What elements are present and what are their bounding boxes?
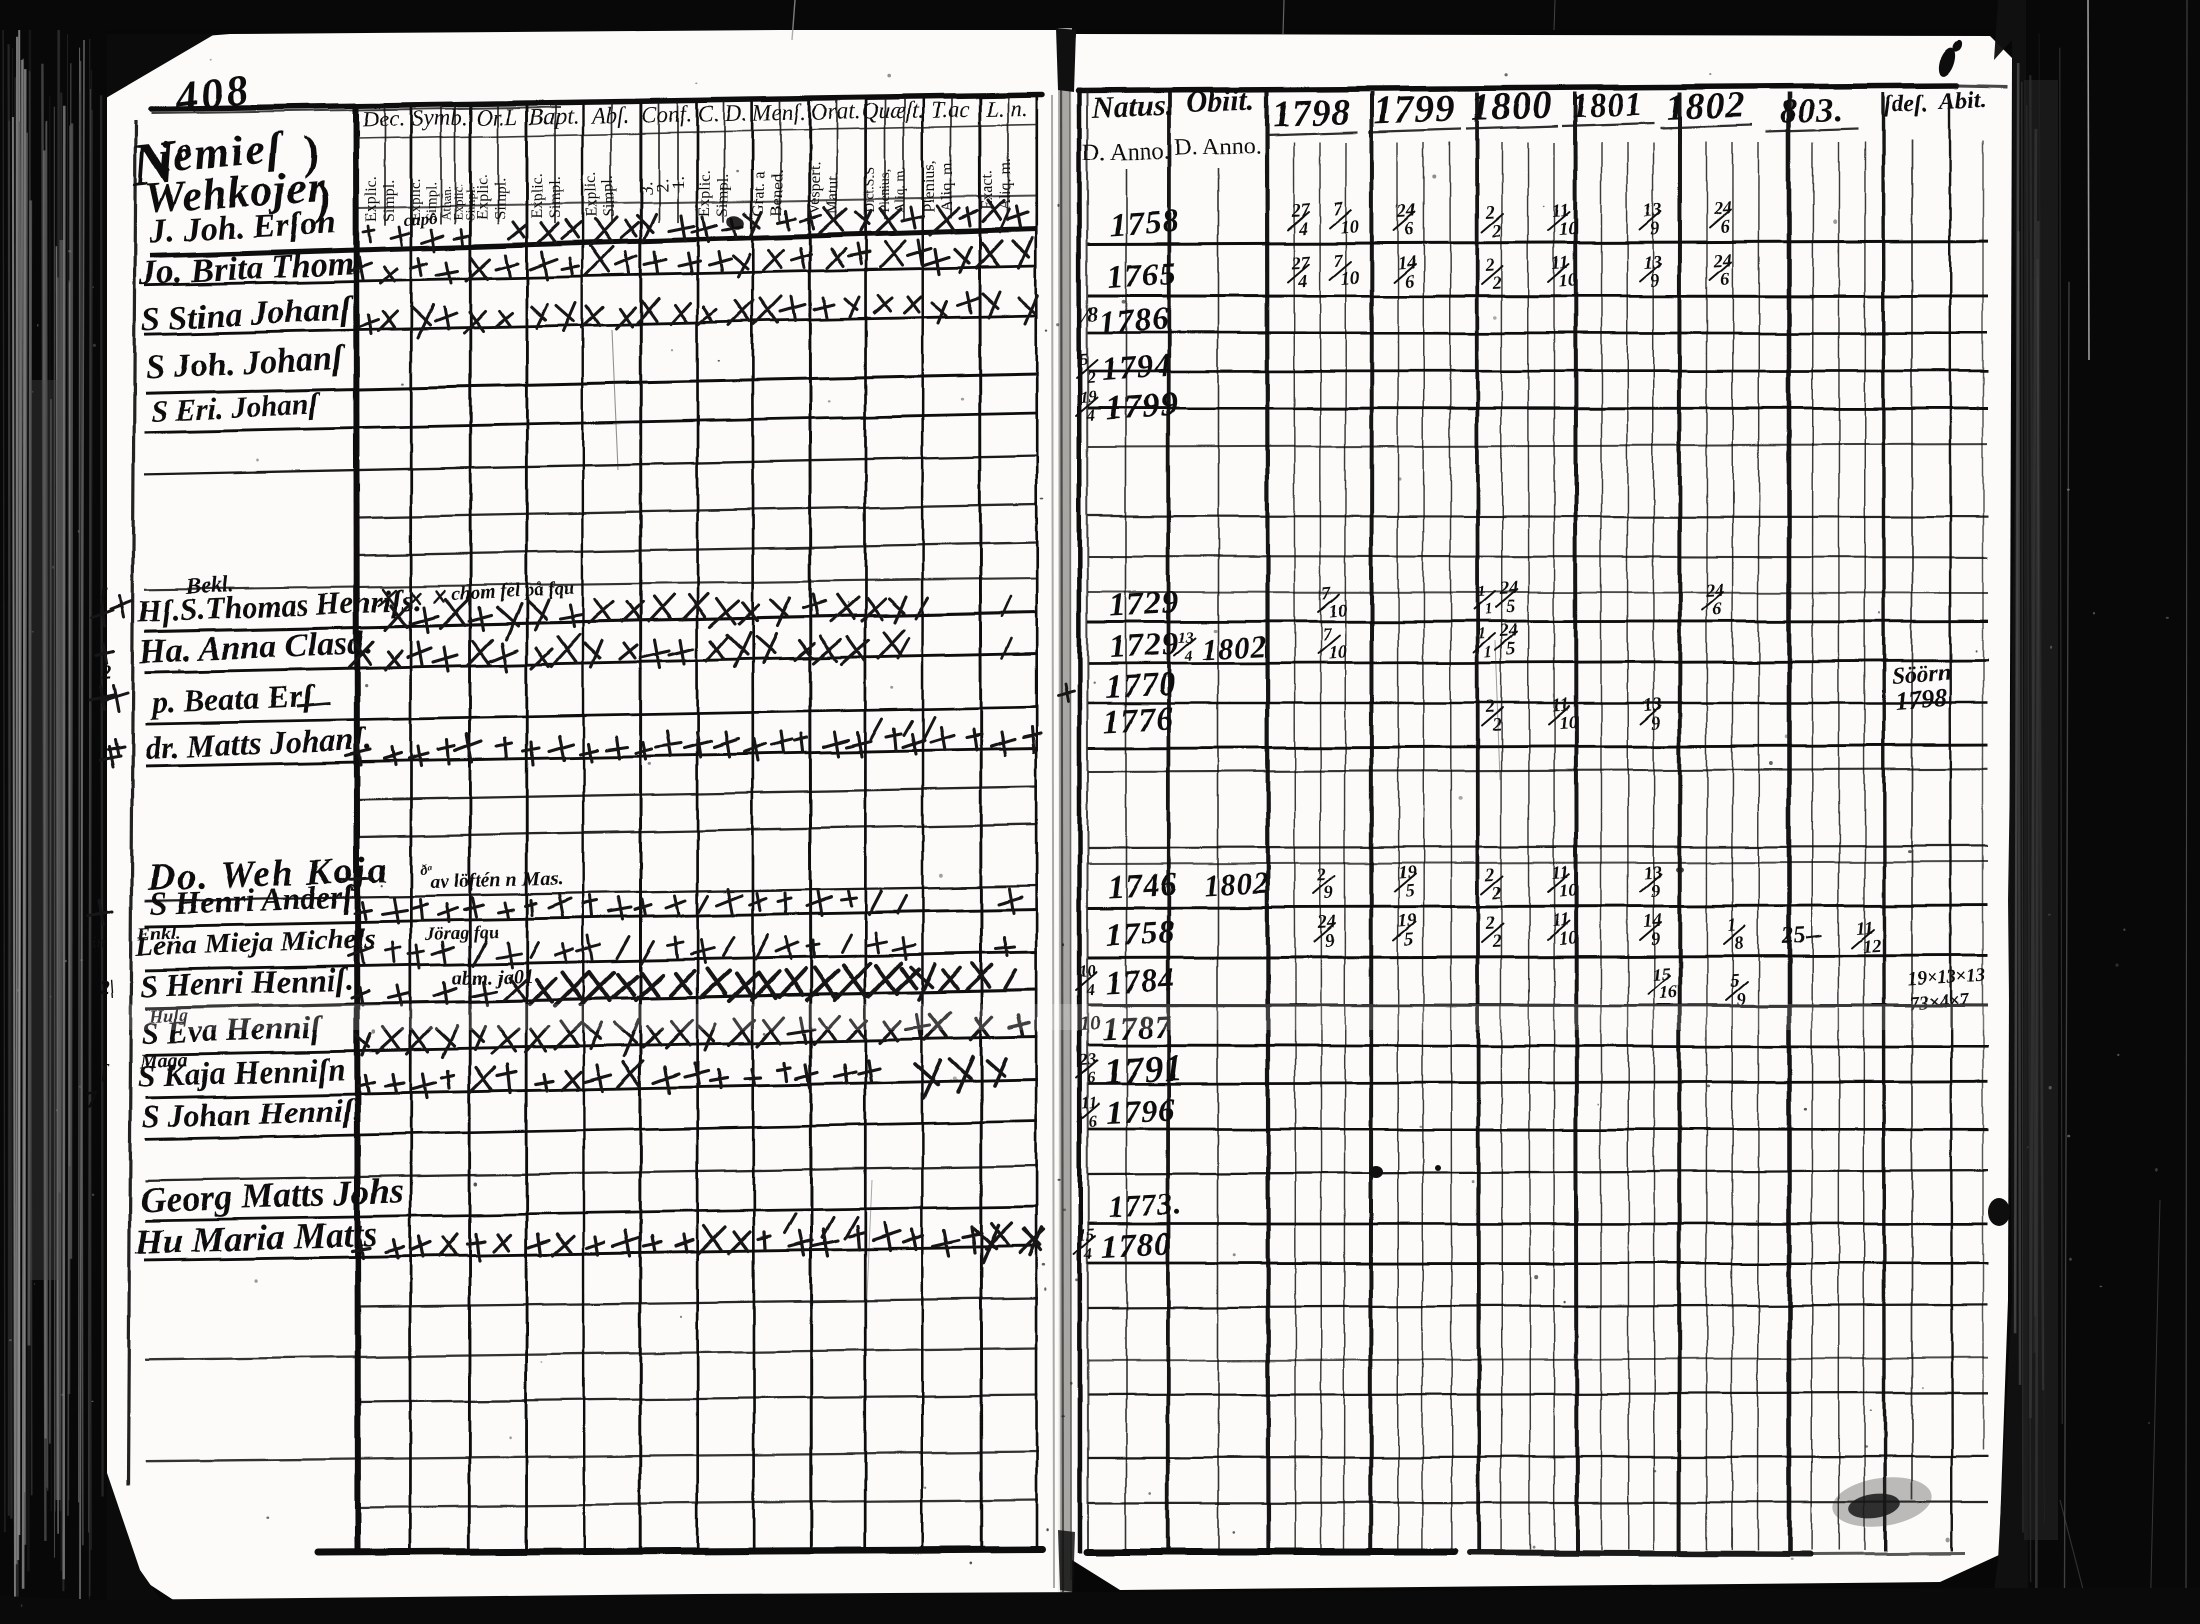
svg-text:10: 10 bbox=[1328, 600, 1348, 621]
svg-text:5: 5 bbox=[1506, 596, 1517, 617]
svg-text:27: 27 bbox=[1290, 200, 1312, 221]
svg-text:10: 10 bbox=[1558, 928, 1578, 949]
svg-text:1786: 1786 bbox=[1098, 301, 1170, 342]
svg-text:1: 1 bbox=[1477, 625, 1486, 643]
svg-text:D. Anno.: D. Anno. bbox=[1174, 133, 1262, 161]
svg-text:5: 5 bbox=[1404, 880, 1415, 901]
svg-text:4: 4 bbox=[1297, 218, 1309, 239]
svg-text:10: 10 bbox=[1558, 218, 1578, 239]
svg-text:5: 5 bbox=[1729, 970, 1740, 991]
svg-text:13: 13 bbox=[1177, 629, 1194, 647]
svg-text:S Henri Henniſ.: S Henri Henniſ. bbox=[139, 961, 354, 1004]
svg-text:Do. Weh Koja: Do. Weh Koja bbox=[146, 849, 389, 899]
svg-text:1799: 1799 bbox=[1373, 87, 1456, 133]
svg-text:4: 4 bbox=[1085, 979, 1096, 999]
svg-text:13: 13 bbox=[1643, 694, 1663, 715]
svg-text:2: 2 bbox=[1491, 714, 1503, 735]
svg-text:ðᵃ: ðᵃ bbox=[419, 861, 432, 878]
svg-text:1: 1 bbox=[1727, 914, 1738, 935]
svg-text:av löftén n Mas.: av löftén n Mas. bbox=[430, 868, 564, 893]
svg-text:Simpl.: Simpl. bbox=[381, 180, 398, 222]
svg-text:9: 9 bbox=[1324, 882, 1335, 903]
svg-text:9: 9 bbox=[1650, 928, 1661, 949]
svg-text:Bened.: Bened. bbox=[769, 170, 786, 215]
svg-text:Explic.: Explic. bbox=[363, 176, 380, 222]
svg-text:Dict.S.S: Dict.S.S bbox=[863, 166, 878, 213]
svg-text:1798: 1798 bbox=[1894, 683, 1948, 716]
svg-text:1802: 1802 bbox=[1666, 85, 1745, 129]
svg-text:24: 24 bbox=[1396, 200, 1417, 221]
svg-text:25: 25 bbox=[1780, 923, 1806, 950]
svg-text:2: 2 bbox=[1491, 272, 1503, 293]
svg-text:Orat.: Orat. bbox=[811, 99, 861, 125]
svg-text:Conf.: Conf. bbox=[641, 101, 692, 127]
svg-text:Enkl.: Enkl. bbox=[136, 923, 180, 946]
svg-text:1776: 1776 bbox=[1103, 700, 1175, 740]
svg-text:in: in bbox=[91, 932, 106, 952]
svg-text:1765: 1765 bbox=[1106, 255, 1178, 296]
svg-text:10: 10 bbox=[1340, 216, 1360, 237]
svg-text:4: 4 bbox=[1083, 1243, 1094, 1263]
svg-text:Simpl.: Simpl. bbox=[492, 178, 509, 220]
svg-text:27: 27 bbox=[1290, 252, 1312, 273]
svg-text:1784: 1784 bbox=[1105, 962, 1177, 1002]
svg-text:24: 24 bbox=[1704, 580, 1725, 601]
svg-text:10: 10 bbox=[1328, 642, 1348, 663]
svg-text:4: 4 bbox=[1297, 270, 1309, 291]
svg-text:24: 24 bbox=[1712, 250, 1733, 271]
svg-text:5: 5 bbox=[1404, 928, 1415, 949]
svg-text:13: 13 bbox=[1643, 200, 1663, 221]
svg-text:2|: 2| bbox=[98, 976, 115, 999]
svg-text:19: 19 bbox=[1397, 862, 1417, 883]
svg-text:10: 10 bbox=[1340, 268, 1360, 289]
svg-text:15: 15 bbox=[1077, 1225, 1095, 1245]
svg-text:12: 12 bbox=[1862, 936, 1882, 957]
svg-text:24: 24 bbox=[1712, 198, 1733, 219]
svg-text:1773.: 1773. bbox=[1107, 1186, 1183, 1225]
svg-text:10: 10 bbox=[1558, 712, 1578, 733]
svg-text:Aliq. m.: Aliq. m. bbox=[997, 158, 1014, 211]
svg-text:Abit.: Abit. bbox=[1937, 86, 1987, 114]
svg-text:Plenius,: Plenius, bbox=[921, 161, 938, 212]
svg-text:S Johan Henniſ.: S Johan Henniſ. bbox=[141, 1091, 362, 1135]
svg-text:13: 13 bbox=[1643, 252, 1663, 273]
svg-text:9: 9 bbox=[1650, 218, 1661, 239]
svg-text:Matut.: Matut. bbox=[825, 172, 842, 214]
svg-text:9: 9 bbox=[1324, 930, 1335, 951]
svg-text:408: 408 bbox=[172, 64, 253, 122]
svg-text:Natus.: Natus. bbox=[1090, 89, 1173, 125]
svg-text:ſdeſ.: ſdeſ. bbox=[1883, 90, 1929, 118]
svg-text:Plenius,: Plenius, bbox=[878, 168, 893, 213]
svg-text:1780: 1780 bbox=[1101, 1226, 1173, 1266]
svg-text:1729: 1729 bbox=[1109, 626, 1181, 666]
svg-text:1.: 1. bbox=[668, 176, 688, 190]
svg-text:Simpl.: Simpl. bbox=[715, 174, 732, 216]
svg-text:1802: 1802 bbox=[1203, 865, 1271, 903]
svg-text:Or.L: Or.L bbox=[476, 104, 518, 130]
svg-text:24: 24 bbox=[1498, 620, 1519, 641]
svg-text:1802: 1802 bbox=[1201, 629, 1269, 667]
svg-text:Simpl.: Simpl. bbox=[600, 176, 617, 218]
svg-text:9: 9 bbox=[1650, 880, 1661, 901]
svg-text:1746: 1746 bbox=[1107, 866, 1179, 906]
svg-text:cupò: cupò bbox=[403, 209, 438, 230]
svg-text:16: 16 bbox=[1658, 982, 1679, 1003]
svg-text:5: 5 bbox=[1079, 349, 1089, 369]
svg-text:Bapt.: Bapt. bbox=[529, 103, 579, 129]
svg-text:1758: 1758 bbox=[1108, 203, 1180, 244]
svg-text:L. n.: L. n. bbox=[985, 96, 1028, 122]
svg-text:Bekl.: Bekl. bbox=[184, 572, 233, 599]
svg-text:Aliq. m.: Aliq. m. bbox=[893, 167, 908, 213]
svg-text:1: 1 bbox=[1484, 601, 1493, 619]
svg-text:1791: 1791 bbox=[1102, 1047, 1184, 1093]
svg-text:1796: 1796 bbox=[1105, 1092, 1177, 1132]
svg-text:Symb.: Symb. bbox=[412, 105, 468, 131]
svg-text:C. D.: C. D. bbox=[698, 100, 748, 126]
svg-text:1799: 1799 bbox=[1104, 384, 1181, 428]
svg-text:Explic.: Explic. bbox=[697, 170, 714, 216]
svg-text:T.ac: T.ac bbox=[930, 97, 969, 123]
svg-text:Vespert.: Vespert. bbox=[807, 162, 824, 214]
svg-text:14: 14 bbox=[1643, 910, 1663, 931]
svg-text:Maga: Maga bbox=[138, 1049, 188, 1073]
svg-text:10: 10 bbox=[1079, 961, 1097, 981]
svg-text:p. Beata Erſ: p. Beata Erſ bbox=[148, 677, 317, 720]
svg-text:1798: 1798 bbox=[1272, 92, 1351, 136]
svg-text:13: 13 bbox=[1643, 862, 1663, 883]
svg-text:1794: 1794 bbox=[1100, 347, 1172, 388]
svg-text:1758: 1758 bbox=[1105, 914, 1177, 954]
svg-text:Exact.: Exact. bbox=[979, 171, 996, 211]
svg-text:11: 11 bbox=[1081, 1093, 1098, 1113]
svg-text:Hu Maria Matts: Hu Maria Matts bbox=[134, 1214, 378, 1262]
svg-text:Explic.: Explic. bbox=[474, 174, 491, 220]
svg-text:2: 2 bbox=[1085, 367, 1096, 387]
svg-text:4: 4 bbox=[1183, 647, 1193, 665]
svg-text:19: 19 bbox=[1397, 910, 1417, 931]
svg-text:Jörag fqu: Jörag fqu bbox=[424, 921, 498, 944]
svg-text:Explic.: Explic. bbox=[529, 173, 546, 219]
svg-text:9: 9 bbox=[1650, 270, 1661, 291]
svg-text:19: 19 bbox=[1079, 387, 1097, 407]
svg-text:1: 1 bbox=[1484, 643, 1493, 661]
svg-text:D. Anno.: D. Anno. bbox=[1082, 138, 1170, 166]
svg-text:23: 23 bbox=[1078, 1049, 1097, 1069]
svg-text:1800: 1800 bbox=[1470, 84, 1553, 130]
svg-text:Dec.: Dec. bbox=[361, 106, 405, 132]
svg-text:Menſ.: Menſ. bbox=[751, 99, 806, 125]
svg-text:Simpl.: Simpl. bbox=[547, 177, 564, 219]
svg-text:4: 4 bbox=[1085, 405, 1096, 425]
svg-text:Obiit.: Obiit. bbox=[1185, 84, 1255, 119]
svg-text:Quæſt.: Quæſt. bbox=[861, 97, 924, 124]
svg-text:10: 10 bbox=[1558, 880, 1578, 901]
svg-text:14: 14 bbox=[1397, 252, 1417, 273]
svg-text:2: 2 bbox=[1491, 220, 1503, 241]
svg-text:24: 24 bbox=[1498, 578, 1519, 599]
svg-text:Grat. a: Grat. a bbox=[751, 171, 768, 215]
svg-text:10: 10 bbox=[1558, 270, 1578, 291]
svg-text:5: 5 bbox=[1506, 638, 1517, 659]
svg-text:9: 9 bbox=[1650, 712, 1661, 733]
svg-text:2: 2 bbox=[1491, 882, 1503, 903]
svg-text:8: 8 bbox=[1734, 932, 1745, 953]
svg-text:Explic.: Explic. bbox=[583, 172, 600, 218]
svg-text:1: 1 bbox=[1477, 583, 1486, 601]
svg-text:1801: 1801 bbox=[1571, 86, 1644, 125]
svg-text:2: 2 bbox=[1491, 930, 1503, 951]
svg-text:1729: 1729 bbox=[1109, 584, 1181, 624]
svg-text:Abſ.: Abſ. bbox=[589, 102, 629, 128]
svg-text:803.: 803. bbox=[1779, 92, 1844, 131]
svg-text:24: 24 bbox=[1316, 912, 1337, 933]
svg-text:2: 2 bbox=[100, 660, 113, 683]
svg-text:Aliq. m.: Aliq. m. bbox=[939, 159, 956, 212]
